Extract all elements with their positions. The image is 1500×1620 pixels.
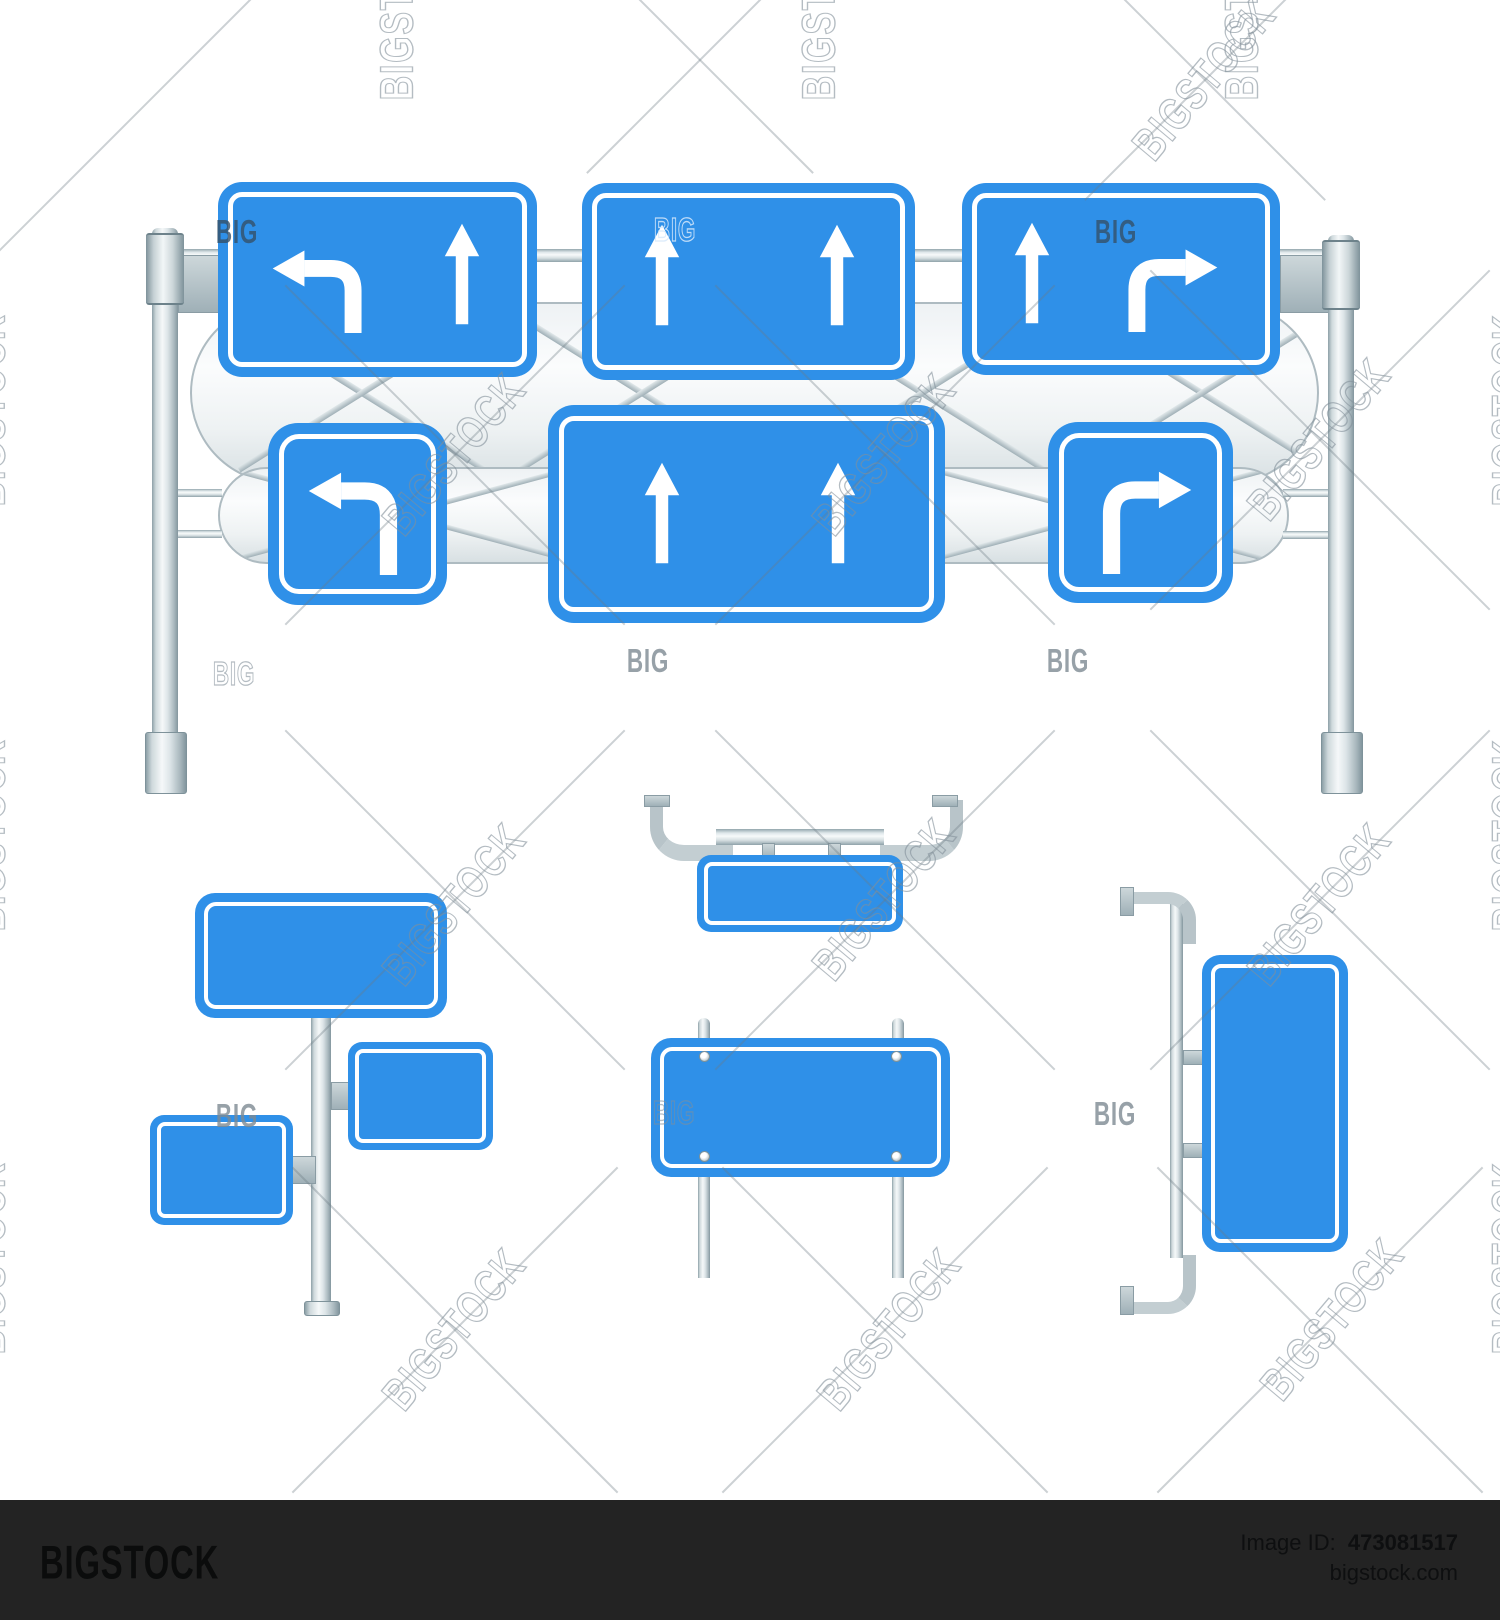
sign-inner-border <box>355 1049 486 1143</box>
gantry-connector-rod <box>178 530 222 538</box>
watermark-text: BIGSTOCK <box>808 1240 971 1421</box>
footer-domain: bigstock.com <box>1240 1558 1458 1588</box>
footer-image-id: Image ID: 473081517 <box>1240 1528 1458 1558</box>
watermark-text: BIGSTOCK <box>0 739 16 931</box>
watermark-text: BIG <box>627 643 669 680</box>
left-turn-arrow-icon <box>260 242 370 333</box>
watermark-line <box>722 1167 1049 1494</box>
left-turn-arrow-icon <box>298 463 410 575</box>
blank-sign-two-posts <box>651 1038 950 1177</box>
rivet <box>891 1151 902 1162</box>
watermark-text: BIGSTOCK <box>0 314 16 506</box>
gantry-sign-square-right-turn <box>1048 422 1233 603</box>
watermark-line <box>292 1167 619 1494</box>
rivet <box>891 1051 902 1062</box>
watermark-line <box>1084 0 1326 201</box>
sign-inner-border <box>157 1122 286 1218</box>
straight-arrow-icon <box>816 461 860 565</box>
watermark-text: BIGSTOCK <box>1217 0 1269 100</box>
side-pole-bottom-bend <box>1130 1255 1196 1314</box>
gantry-sign-straight-right-turn <box>962 183 1280 375</box>
sign-inner-border <box>1211 964 1339 1243</box>
watermark-line <box>1084 0 1326 201</box>
straight-arrow-icon <box>815 223 859 327</box>
gantry-right-pole-base <box>1321 732 1363 794</box>
gantry-sign-square-left-turn <box>268 423 447 605</box>
sign-inner-border <box>704 862 896 925</box>
gantry-left-pole-collar <box>146 233 184 305</box>
blank-sign-small <box>150 1115 293 1225</box>
gantry-sign-left-turn-straight <box>218 182 537 377</box>
side-pole-top-bend <box>1130 892 1196 944</box>
right-turn-arrow-icon <box>1090 462 1202 574</box>
right-turn-arrow-icon <box>1120 241 1230 332</box>
watermark-line <box>0 0 253 253</box>
sign-mount-bracket <box>1183 1050 1204 1065</box>
sign-inner-border <box>660 1047 941 1168</box>
watermark-text: BIGSTOCK <box>1484 314 1500 506</box>
watermark-text: BIG <box>1094 1096 1136 1133</box>
watermark-text: BIGSTOCK <box>1123 0 1286 170</box>
side-pole <box>1170 903 1183 1258</box>
gantry-left-pole-base <box>145 732 187 794</box>
blank-group-pole <box>311 1008 331 1302</box>
straight-arrow-icon <box>640 223 684 327</box>
sign-mount-bracket <box>1183 1143 1204 1158</box>
hanging-bracket-right-hook <box>880 800 963 861</box>
watermark-text: BIG <box>1047 643 1089 680</box>
blank-sign-medium <box>348 1042 493 1150</box>
straight-arrow-icon <box>440 222 484 326</box>
sign-inner-border <box>559 416 934 612</box>
footer-image-info: Image ID: 473081517 bigstock.com <box>1240 1528 1458 1588</box>
sign-mount-bracket <box>292 1156 316 1184</box>
gantry-connector-rod <box>178 489 222 497</box>
gantry-right-pole-collar <box>1322 240 1360 310</box>
gantry-sign-wide-straight-straight <box>548 405 945 623</box>
blank-sign-large <box>195 893 447 1018</box>
stock-image-preview: BIGSTOCK BIGSTOCK BIGSTOCK BIGSTOCK BIGS… <box>0 0 1500 1620</box>
sign-inner-border <box>204 902 438 1009</box>
watermark-text: BIG <box>213 656 255 693</box>
watermark-line <box>586 0 814 174</box>
gantry-connector-rod <box>1283 489 1331 497</box>
watermark-text: BIGSTOCK <box>0 1162 16 1354</box>
hanging-bracket-flange <box>932 795 958 807</box>
straight-arrow-icon <box>1010 221 1054 325</box>
straight-arrow-icon <box>640 461 684 565</box>
watermark-line <box>292 1167 619 1494</box>
footer-image-id-label: Image ID: <box>1240 1530 1335 1555</box>
gantry-connector-rod <box>1283 531 1331 539</box>
side-pole-flange <box>1120 887 1134 916</box>
hanging-bracket-flange <box>644 795 670 807</box>
blank-group-pole-base <box>304 1301 340 1316</box>
watermark-text: BIGSTOCK <box>373 1240 536 1421</box>
watermark-text: BIGSTOCK <box>1484 1162 1500 1354</box>
footer-bigstock-logo: BIGSTOCK <box>40 1537 219 1590</box>
side-pole-flange <box>1120 1286 1134 1315</box>
watermark-line <box>586 0 814 174</box>
footer-image-id-value: 473081517 <box>1348 1530 1458 1555</box>
watermark-text: BIGSTOCK <box>372 0 424 100</box>
watermark-line <box>722 1167 1049 1494</box>
blank-sign-vertical <box>1202 955 1348 1252</box>
rivet <box>699 1151 710 1162</box>
gantry-sign-straight-straight <box>582 183 915 380</box>
sign-mount-bracket <box>178 255 222 313</box>
hanging-bracket-bar <box>716 829 884 845</box>
rivet <box>699 1051 710 1062</box>
watermark-text: BIGSTOCK <box>1251 1230 1414 1411</box>
watermark-text: BIGSTOCK <box>1484 739 1500 931</box>
blank-sign-hanging <box>697 855 903 932</box>
watermark-text: BIGSTOCK <box>794 0 846 100</box>
